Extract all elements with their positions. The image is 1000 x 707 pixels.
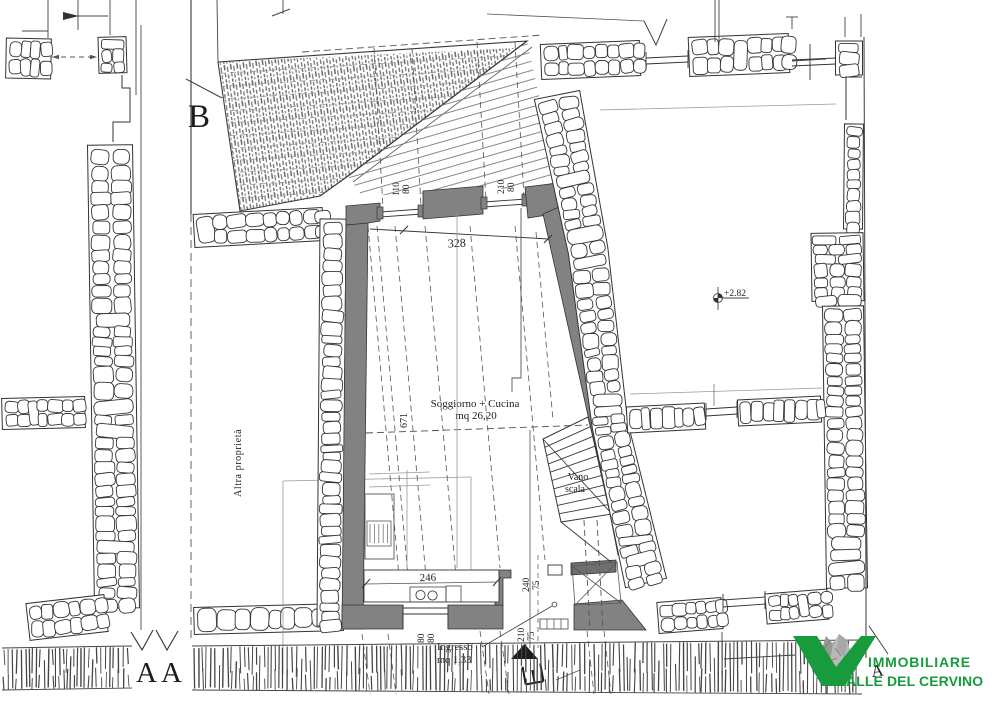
svg-text:210: 210: [517, 628, 527, 643]
svg-text:A A: A A: [136, 657, 182, 689]
svg-text:+2.82: +2.82: [724, 289, 746, 299]
svg-text:240: 240: [522, 578, 532, 593]
svg-text:Vano: Vano: [568, 472, 589, 483]
svg-text:mq 1,33: mq 1,33: [437, 655, 471, 666]
svg-text:110: 110: [392, 182, 402, 196]
svg-text:80: 80: [507, 182, 517, 192]
svg-text:mq 26,20: mq 26,20: [455, 410, 497, 422]
svg-text:scala: scala: [565, 484, 586, 495]
svg-text:ALLE DEL CERVINO: ALLE DEL CERVINO: [846, 673, 983, 689]
svg-text:246: 246: [419, 572, 436, 585]
svg-text:B: B: [188, 99, 210, 135]
svg-text:210: 210: [497, 180, 507, 195]
svg-text:Altra proprietà: Altra proprietà: [233, 429, 244, 497]
svg-text:80: 80: [402, 184, 412, 194]
svg-text:671: 671: [399, 413, 410, 428]
svg-text:75: 75: [532, 580, 542, 590]
svg-text:Soggiorno + Cucina: Soggiorno + Cucina: [431, 398, 520, 410]
svg-text:IMMOBILIARE: IMMOBILIARE: [868, 654, 971, 670]
svg-text:75: 75: [527, 631, 537, 641]
svg-text:80: 80: [417, 633, 427, 643]
svg-text:80: 80: [427, 633, 437, 643]
